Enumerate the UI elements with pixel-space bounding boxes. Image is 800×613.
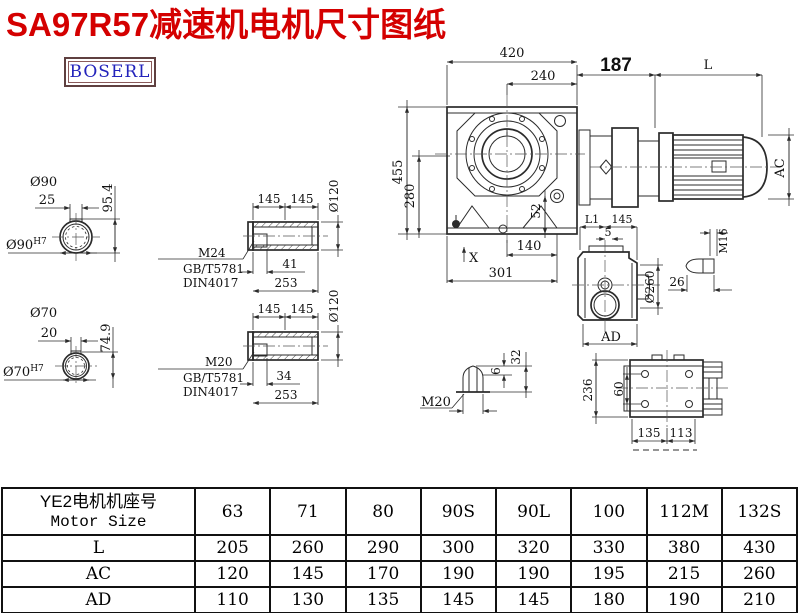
dim-280: 280	[403, 184, 418, 209]
row-label: AD	[2, 587, 195, 613]
dim-74-9: 74.9	[99, 324, 114, 353]
label-m20: M20	[205, 355, 233, 369]
table-header-zh: YE2电机机座号	[3, 491, 194, 512]
dim-M16: M16	[717, 228, 730, 253]
cell: 145	[496, 587, 571, 613]
dim-dia70: Ø70	[30, 306, 57, 321]
cell: 130	[270, 587, 345, 613]
row-label: AC	[2, 561, 195, 587]
dim-113: 113	[670, 426, 693, 440]
cell: 145	[421, 587, 496, 613]
size-col: 100	[571, 488, 646, 535]
cell: 215	[647, 561, 722, 587]
table-header-motor-size: YE2电机机座号 Motor Size	[2, 488, 195, 535]
plug-detail-view: 6 32 M20	[420, 349, 532, 414]
cell: 180	[571, 587, 646, 613]
size-col: 90L	[496, 488, 571, 535]
dim-dia260: Ø260	[643, 271, 657, 304]
dim-34: 34	[276, 369, 292, 383]
dim-455: 455	[391, 160, 406, 185]
label-gb-t5781-b: GB/T5781	[183, 371, 244, 385]
motor-size-table: YE2电机机座号 Motor Size 63 71 80 90S 90L 100…	[1, 487, 798, 613]
cell: 330	[571, 535, 646, 561]
cell: 320	[496, 535, 571, 561]
output-bore-70-view: Ø70 20 74.9 Ø70H7	[3, 306, 118, 388]
cell: 135	[346, 587, 421, 613]
size-col: 80	[346, 488, 421, 535]
label-din4017-b: DIN4017	[183, 385, 238, 399]
table-row-AC: AC 120 145 170 190 190 195 215 260	[2, 561, 797, 587]
dim-140: 140	[517, 239, 542, 254]
cell: 190	[421, 561, 496, 587]
cell: 290	[346, 535, 421, 561]
size-col: 112M	[647, 488, 722, 535]
size-col: 71	[270, 488, 345, 535]
label-x: X	[469, 251, 479, 266]
dim-AC: AC	[773, 158, 788, 178]
dim-dia90: Ø90	[30, 175, 57, 190]
hollow-shaft-m20-view: 145 145 Ø120 M20 GB/T5781 DIN4017 34 253	[158, 290, 343, 405]
dim-52: 52	[529, 203, 543, 218]
cell: 430	[722, 535, 797, 561]
hollow-shaft-m24-view: 145 145 Ø120 M24 GB/T5781 DIN4017 41 253	[158, 180, 343, 293]
dim-6: 6	[489, 367, 503, 375]
dim-bore70: Ø70H7	[3, 364, 44, 380]
cell: 190	[647, 587, 722, 613]
dim-95-4: 95.4	[101, 184, 116, 213]
label-gb-t5781-a: GB/T5781	[183, 262, 244, 276]
table-header-en: Motor Size	[3, 512, 194, 532]
motor-side-view: 187 L AC	[577, 55, 794, 207]
cell: 260	[270, 535, 345, 561]
cell: 210	[722, 587, 797, 613]
dim-41: 41	[282, 257, 297, 271]
gearbox-side-view: L1 145 5 Ø260 AD M16 26	[572, 213, 732, 347]
dim-32: 32	[509, 349, 523, 364]
technical-drawing: Ø90 25 95.4 Ø90H7 Ø70	[0, 0, 800, 487]
cell: 110	[195, 587, 270, 613]
dim-253b: 253	[275, 388, 298, 402]
dim-dia120a: Ø120	[327, 180, 341, 213]
cell: 260	[722, 561, 797, 587]
dim-dia120b: Ø120	[327, 290, 341, 323]
dim-420: 420	[500, 46, 525, 61]
dim-20: 20	[41, 326, 58, 341]
row-label: L	[2, 535, 195, 561]
cell: 190	[496, 561, 571, 587]
cell: 170	[346, 561, 421, 587]
cell: 300	[421, 535, 496, 561]
dim-AD: AD	[600, 330, 621, 345]
size-col: 132S	[722, 488, 797, 535]
dim-145d: 145	[291, 302, 314, 316]
dim-135: 135	[638, 426, 661, 440]
cell: 205	[195, 535, 270, 561]
dim-301: 301	[489, 266, 514, 281]
gearbox-rear-view: 236 60 135 113	[581, 350, 730, 450]
size-col: 63	[195, 488, 270, 535]
dim-145a: 145	[258, 192, 281, 206]
dim-5: 5	[605, 226, 612, 239]
dim-240: 240	[531, 69, 556, 84]
size-col: 90S	[421, 488, 496, 535]
cell: 120	[195, 561, 270, 587]
dim-145c: 145	[258, 302, 281, 316]
dim-187: 187	[600, 55, 632, 76]
dim-25: 25	[39, 193, 56, 208]
dim-L: L	[704, 58, 713, 73]
dim-145b: 145	[291, 192, 314, 206]
dim-bore90: Ø90H7	[6, 237, 47, 253]
dim-145e: 145	[612, 213, 633, 226]
label-m24: M24	[198, 246, 226, 260]
dimension-sheet: SA97R57减速机电机尺寸图纸 BOSERL Ø90 25	[0, 0, 800, 613]
cell: 145	[270, 561, 345, 587]
gearbox-front-view: 420 240 455 280 52 X 140 301	[391, 46, 585, 283]
output-bore-90-view: Ø90 25 95.4 Ø90H7	[6, 175, 120, 262]
table-row-AD: AD 110 130 135 145 145 180 190 210	[2, 587, 797, 613]
dim-26: 26	[669, 275, 684, 289]
dim-253a: 253	[275, 276, 298, 290]
table-row-L: L 205 260 290 300 320 330 380 430	[2, 535, 797, 561]
cell: 195	[571, 561, 646, 587]
label-din4017-a: DIN4017	[183, 276, 238, 290]
dim-L1: L1	[585, 213, 599, 226]
dim-236: 236	[581, 379, 595, 402]
dim-60: 60	[612, 381, 626, 396]
cell: 380	[647, 535, 722, 561]
